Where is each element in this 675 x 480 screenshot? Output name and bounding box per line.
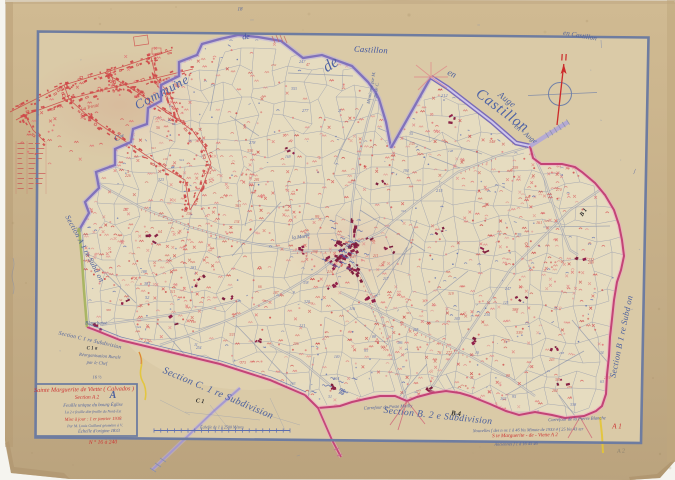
svg-text:232: 232 (271, 63, 277, 67)
svg-text:272: 272 (446, 350, 452, 355)
svg-text:232: 232 (588, 257, 594, 262)
svg-text:388: 388 (512, 307, 519, 312)
svg-text:398: 398 (312, 250, 318, 254)
svg-text:259: 259 (512, 165, 518, 170)
svg-text:34: 34 (600, 351, 604, 355)
svg-text:254: 254 (196, 346, 202, 350)
svg-text:270: 270 (144, 338, 151, 343)
svg-text:287: 287 (263, 299, 268, 303)
svg-text:320: 320 (304, 299, 310, 304)
svg-text:188: 188 (141, 270, 147, 274)
svg-text:344: 344 (136, 325, 141, 329)
svg-text:215: 215 (436, 188, 443, 193)
svg-text:95: 95 (512, 394, 516, 399)
svg-text:116: 116 (163, 157, 168, 161)
svg-text:234: 234 (484, 313, 490, 317)
svg-text:333: 333 (229, 333, 235, 337)
svg-text:330: 330 (247, 148, 253, 153)
svg-text:313: 313 (401, 209, 406, 213)
svg-text:156: 156 (186, 211, 192, 216)
svg-text:365: 365 (413, 328, 419, 332)
svg-text:204: 204 (333, 376, 339, 381)
svg-text:278: 278 (249, 140, 256, 145)
svg-text:321: 321 (151, 146, 156, 150)
svg-text:339: 339 (516, 330, 523, 335)
svg-text:52: 52 (119, 298, 123, 302)
svg-text:187: 187 (273, 291, 279, 295)
svg-text:386: 386 (397, 341, 403, 345)
svg-text:146: 146 (191, 320, 196, 324)
svg-text:31: 31 (328, 395, 332, 399)
svg-text:206: 206 (293, 342, 299, 346)
svg-text:35: 35 (409, 132, 413, 136)
svg-text:264: 264 (552, 389, 558, 393)
svg-text:214: 214 (327, 269, 333, 274)
svg-text:385: 385 (555, 378, 561, 382)
svg-text:275: 275 (504, 339, 510, 343)
svg-text:167: 167 (168, 221, 173, 225)
svg-text:64: 64 (158, 230, 162, 234)
svg-text:293: 293 (559, 351, 565, 355)
svg-text:181: 181 (190, 265, 196, 270)
svg-text:121: 121 (299, 323, 305, 328)
svg-text:18: 18 (410, 238, 414, 242)
svg-text:116: 116 (349, 306, 356, 311)
svg-text:270: 270 (556, 188, 562, 192)
svg-text:381: 381 (144, 281, 150, 286)
svg-text:148: 148 (448, 149, 453, 153)
svg-text:211: 211 (373, 254, 379, 258)
svg-text:364: 364 (406, 311, 411, 315)
svg-text:217: 217 (383, 277, 389, 281)
svg-text:173: 173 (240, 360, 246, 365)
svg-text:323: 323 (158, 177, 164, 182)
svg-text:338: 338 (570, 402, 576, 407)
svg-text:277: 277 (302, 108, 309, 113)
svg-text:324: 324 (179, 158, 184, 162)
svg-text:319: 319 (448, 292, 454, 296)
svg-text:338: 338 (303, 281, 309, 285)
svg-text:40: 40 (382, 260, 386, 264)
svg-text:353: 353 (291, 87, 297, 91)
svg-text:157: 157 (123, 208, 129, 212)
svg-text:88: 88 (372, 335, 376, 339)
svg-text:247: 247 (505, 286, 512, 291)
svg-text:135: 135 (409, 142, 415, 146)
svg-text:21: 21 (338, 109, 342, 113)
svg-text:10: 10 (475, 351, 479, 355)
svg-text:363: 363 (235, 204, 241, 208)
svg-text:377: 377 (416, 389, 421, 393)
svg-text:66: 66 (258, 285, 262, 289)
svg-text:360: 360 (106, 308, 111, 312)
svg-text:243: 243 (549, 358, 555, 362)
svg-text:194: 194 (403, 169, 409, 173)
svg-text:348: 348 (489, 139, 496, 144)
svg-text:59: 59 (172, 122, 176, 126)
svg-text:134: 134 (234, 220, 240, 224)
svg-text:63: 63 (600, 379, 604, 384)
svg-text:93: 93 (364, 349, 368, 353)
svg-text:103: 103 (500, 396, 506, 401)
svg-text:161: 161 (536, 220, 542, 225)
svg-text:103: 103 (454, 316, 460, 321)
svg-text:125: 125 (503, 301, 509, 305)
svg-text:281: 281 (254, 178, 260, 182)
svg-text:169: 169 (285, 155, 291, 159)
svg-text:88: 88 (506, 374, 510, 378)
svg-text:140: 140 (334, 355, 340, 359)
svg-text:56: 56 (156, 125, 160, 130)
svg-text:239: 239 (567, 385, 572, 389)
svg-text:212: 212 (441, 93, 448, 98)
svg-text:311: 311 (170, 290, 176, 294)
svg-text:329: 329 (544, 219, 549, 223)
svg-text:226: 226 (125, 174, 131, 178)
